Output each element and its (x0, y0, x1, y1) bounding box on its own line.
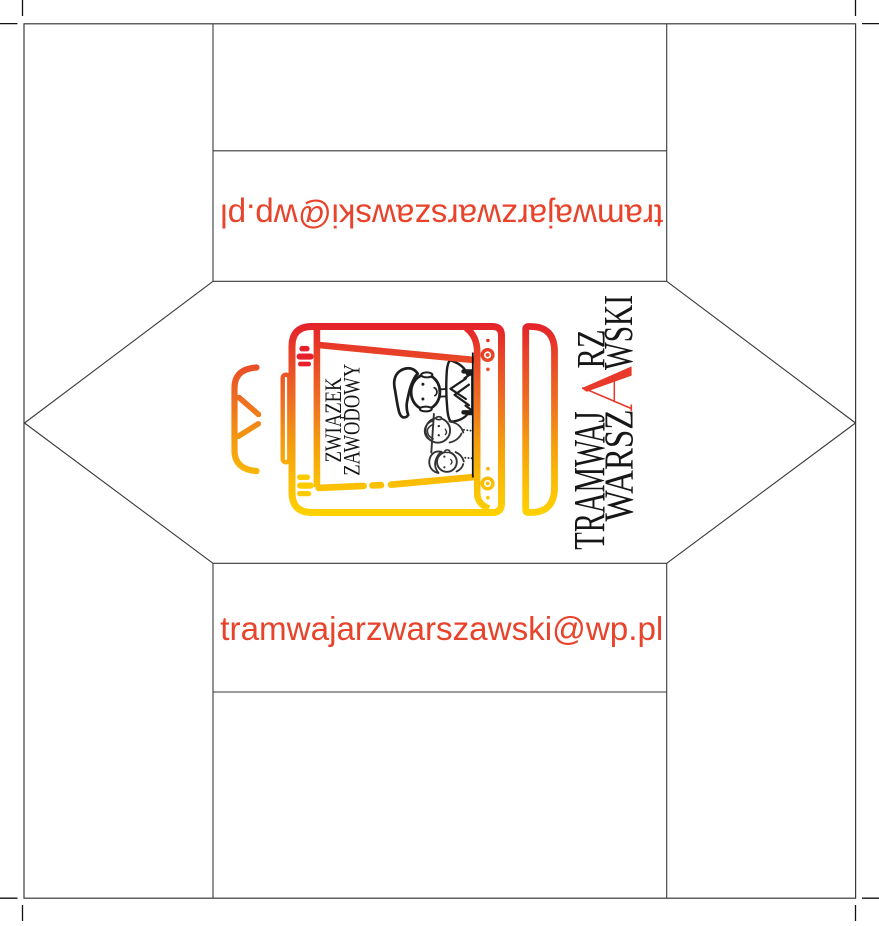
svg-text:WARSZ: WARSZ (596, 410, 642, 522)
svg-text:ZAWODOWY: ZAWODOWY (340, 364, 366, 476)
svg-text:tramwajarzwarszawski@wp.pl: tramwajarzwarszawski@wp.pl (220, 610, 663, 647)
svg-text:WSKI: WSKI (595, 295, 641, 370)
svg-text:tramwajarzwarszawski@wp.pl: tramwajarzwarszawski@wp.pl (220, 197, 663, 234)
